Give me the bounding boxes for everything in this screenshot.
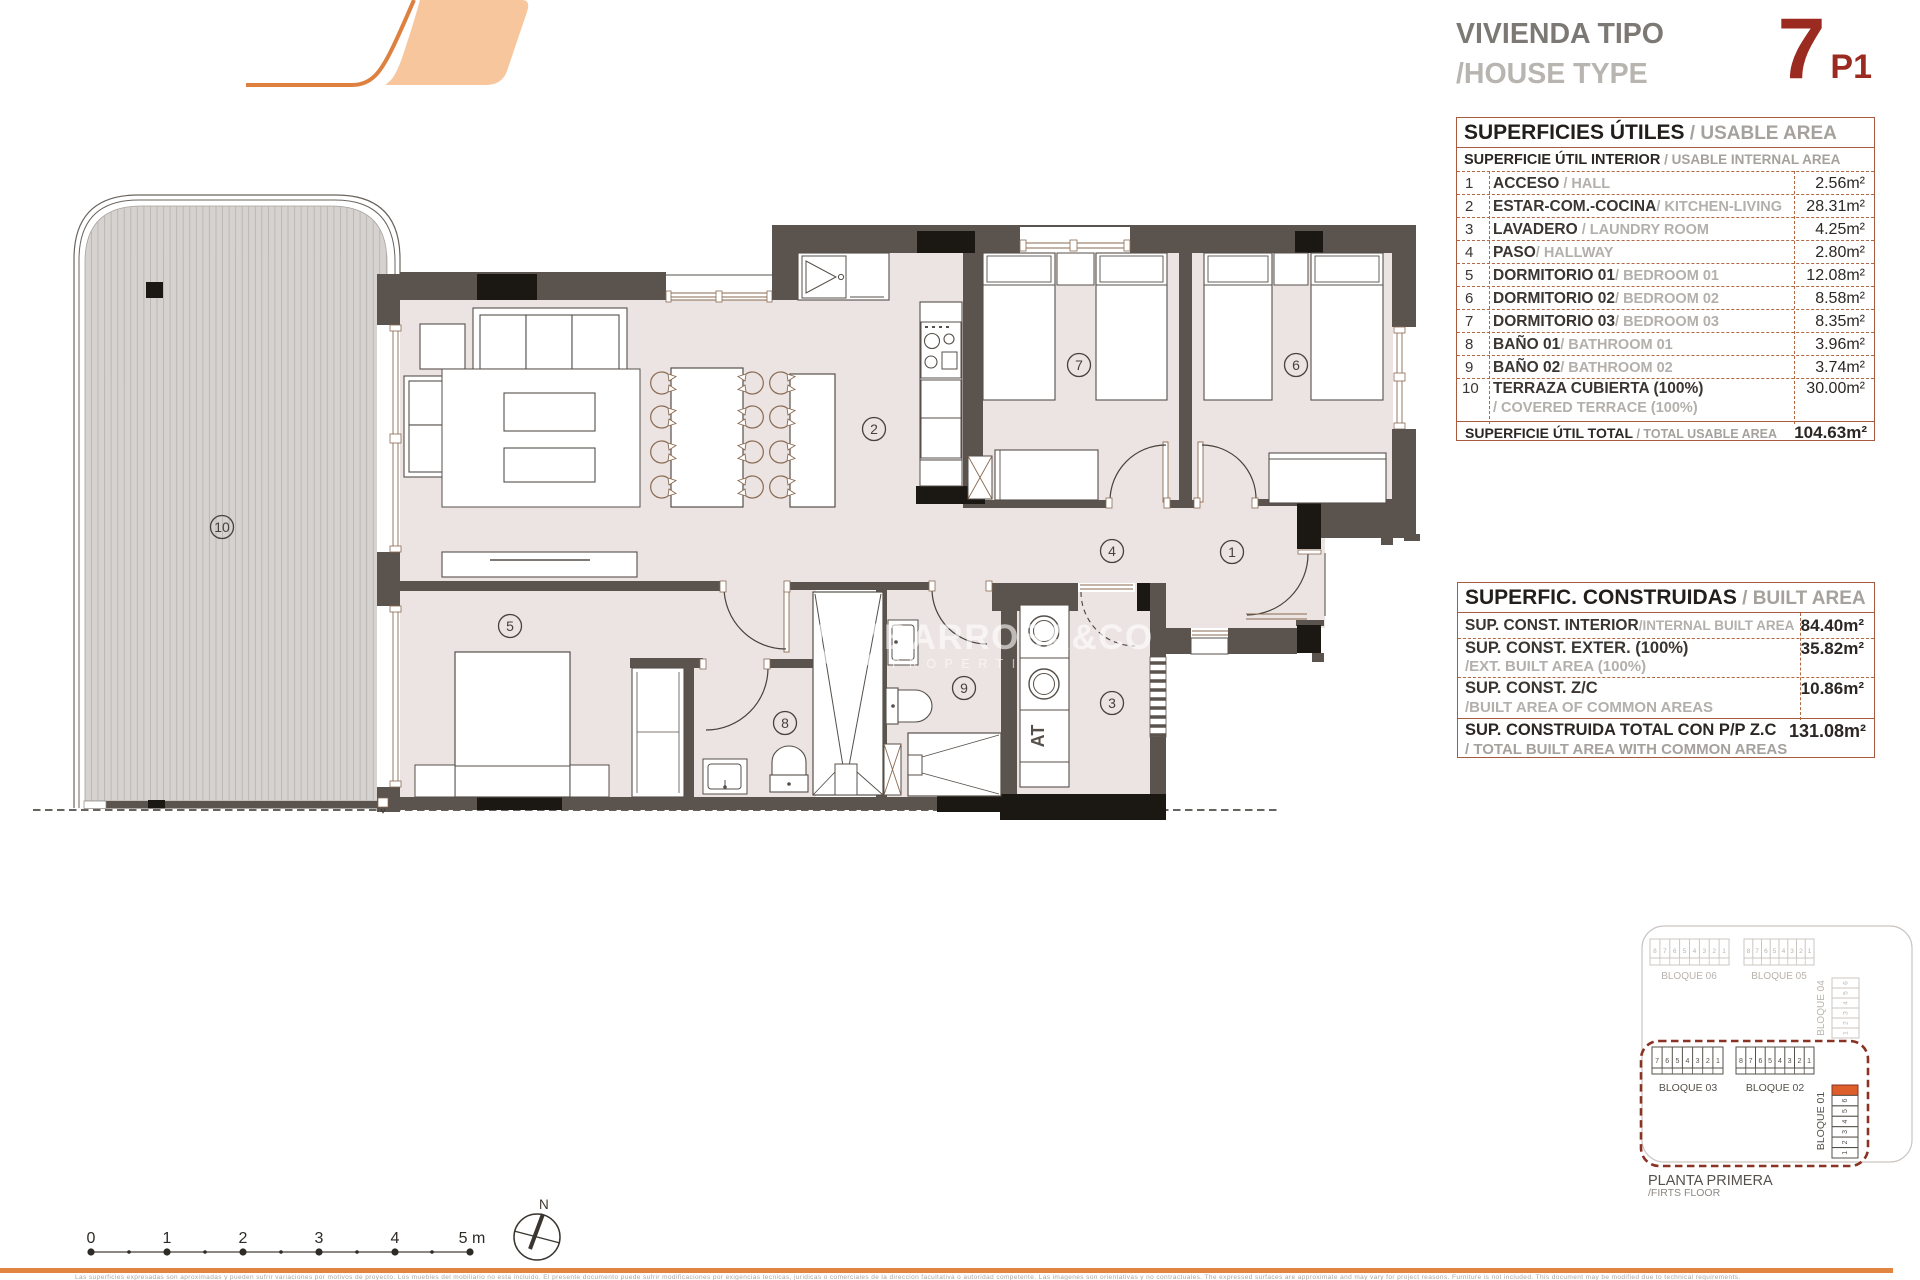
svg-text:2: 2 (1843, 1021, 1850, 1025)
svg-text:BLOQUE 02: BLOQUE 02 (1746, 1082, 1805, 1094)
svg-text:1: 1 (1228, 544, 1236, 560)
svg-text:7: 7 (1755, 948, 1759, 955)
svg-text:2: 2 (870, 421, 878, 437)
svg-text:7: 7 (1663, 948, 1667, 955)
svg-text:2: 2 (1799, 948, 1803, 955)
svg-text:BLOQUE 01: BLOQUE 01 (1815, 1092, 1827, 1151)
svg-text:7: 7 (1655, 1058, 1659, 1065)
svg-text:6: 6 (1292, 357, 1300, 373)
svg-text:4: 4 (391, 1230, 400, 1247)
svg-text:2: 2 (1706, 1058, 1710, 1065)
svg-text:1: 1 (1808, 948, 1812, 955)
svg-text:7: 7 (1075, 357, 1083, 373)
svg-text:AT: AT (1028, 725, 1048, 748)
svg-text:3: 3 (315, 1230, 324, 1247)
svg-text:10: 10 (214, 519, 230, 535)
svg-text:4: 4 (1693, 948, 1697, 955)
svg-text:5: 5 (1768, 1058, 1772, 1065)
svg-text:BARROSA&CO: BARROSA&CO (884, 618, 1154, 657)
svg-text:Las superficies expresadas son: Las superficies expresadas son aproximad… (75, 1274, 1741, 1280)
svg-text:8: 8 (1739, 1058, 1743, 1065)
svg-text:8: 8 (781, 715, 789, 731)
svg-text:4: 4 (1686, 1058, 1690, 1065)
svg-text:4: 4 (1842, 1119, 1849, 1123)
svg-text:4: 4 (1843, 1001, 1850, 1005)
svg-text:N: N (539, 1197, 549, 1212)
svg-text:6: 6 (1673, 948, 1677, 955)
svg-text:9: 9 (960, 680, 968, 696)
svg-text:3: 3 (1108, 695, 1116, 711)
svg-text:4: 4 (1778, 1058, 1782, 1065)
svg-text:PROPERTIES: PROPERTIES (892, 657, 1057, 671)
svg-text:1: 1 (1842, 1151, 1849, 1155)
svg-text:3: 3 (1788, 1058, 1792, 1065)
svg-text:1: 1 (1807, 1058, 1811, 1065)
svg-text:3: 3 (1790, 948, 1794, 955)
svg-text:3: 3 (1842, 1130, 1849, 1134)
svg-text:6: 6 (1843, 981, 1850, 985)
svg-text:1: 1 (1843, 1031, 1850, 1035)
svg-text:1: 1 (1722, 948, 1726, 955)
svg-text:6: 6 (1764, 948, 1768, 955)
svg-text:4: 4 (1108, 543, 1116, 559)
svg-text:1: 1 (1716, 1058, 1720, 1065)
svg-text:3: 3 (1696, 1058, 1700, 1065)
svg-text:2: 2 (1842, 1140, 1849, 1144)
svg-text:2: 2 (1712, 948, 1716, 955)
svg-text:3: 3 (1843, 1011, 1850, 1015)
svg-text:5 m: 5 m (459, 1230, 486, 1247)
svg-text:1: 1 (163, 1230, 172, 1247)
svg-text:5: 5 (506, 618, 514, 634)
svg-text:3: 3 (1702, 948, 1706, 955)
svg-text:0: 0 (87, 1230, 96, 1247)
svg-text:BLOQUE 05: BLOQUE 05 (1751, 971, 1807, 982)
svg-text:6: 6 (1665, 1058, 1669, 1065)
svg-text:6: 6 (1758, 1058, 1762, 1065)
svg-text:BLOQUE 04: BLOQUE 04 (1816, 980, 1827, 1036)
svg-text:5: 5 (1773, 948, 1777, 955)
svg-text:8: 8 (1747, 948, 1751, 955)
svg-text:8: 8 (1653, 948, 1657, 955)
svg-text:5: 5 (1683, 948, 1687, 955)
svg-text:BLOQUE 06: BLOQUE 06 (1661, 971, 1717, 982)
svg-text:5: 5 (1842, 1109, 1849, 1113)
svg-text:2: 2 (1797, 1058, 1801, 1065)
svg-text:BLOQUE 03: BLOQUE 03 (1659, 1082, 1718, 1094)
svg-text:/FIRTS FLOOR: /FIRTS FLOOR (1648, 1187, 1721, 1199)
svg-text:2: 2 (239, 1230, 248, 1247)
svg-text:5: 5 (1843, 991, 1850, 995)
svg-text:4: 4 (1782, 948, 1786, 955)
svg-text:7: 7 (1749, 1058, 1753, 1065)
svg-text:6: 6 (1842, 1099, 1849, 1103)
svg-text:5: 5 (1675, 1058, 1679, 1065)
